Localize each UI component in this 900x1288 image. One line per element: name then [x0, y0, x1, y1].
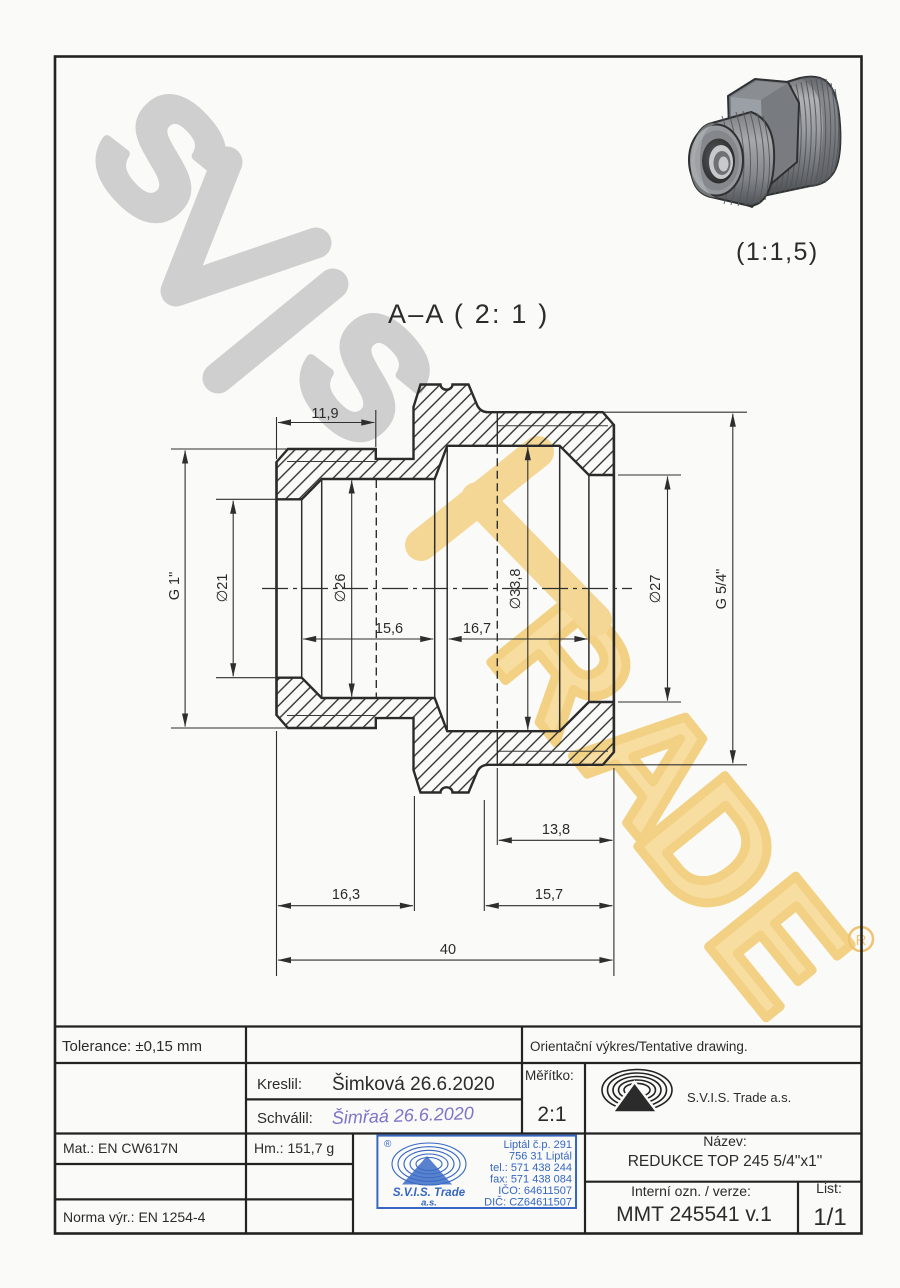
svg-text:Interní ozn. / verze:: Interní ozn. / verze: — [631, 1183, 751, 1199]
svg-text:IČO: 64611507: IČO: 64611507 — [498, 1184, 572, 1197]
svg-text:DIČ: CZ64611507: DIČ: CZ64611507 — [484, 1196, 572, 1209]
svg-text:15,7: 15,7 — [535, 887, 563, 903]
svg-text:A–A ( 2: 1 ): A–A ( 2: 1 ) — [388, 299, 549, 329]
svg-text:Měřítko:: Měřítko: — [525, 1068, 574, 1083]
svg-text:MMT 245541 v.1: MMT 245541 v.1 — [616, 1203, 772, 1226]
svg-text:Schválil:: Schválil: — [257, 1110, 313, 1127]
svg-text:∅26: ∅26 — [333, 574, 349, 603]
svg-text:16,7: 16,7 — [463, 621, 491, 637]
svg-text:(1:1,5): (1:1,5) — [736, 238, 819, 266]
svg-text:fax: 571 438 084: fax: 571 438 084 — [490, 1174, 572, 1186]
svg-text:G 5/4": G 5/4" — [714, 569, 730, 610]
svg-text:S.V.I.S. Trade a.s.: S.V.I.S. Trade a.s. — [687, 1090, 791, 1105]
svg-text:Liptál č.p. 291: Liptál č.p. 291 — [504, 1139, 573, 1151]
svg-text:Tolerance: ±0,15 mm: Tolerance: ±0,15 mm — [62, 1038, 202, 1055]
svg-text:List:: List: — [816, 1180, 842, 1196]
svg-text:®: ® — [384, 1139, 392, 1150]
svg-text:Norma výr.: EN 1254-4: Norma výr.: EN 1254-4 — [63, 1209, 206, 1225]
svg-text:15,6: 15,6 — [375, 621, 403, 637]
svg-text:G 1": G 1" — [167, 572, 183, 601]
svg-text:REDUKCE TOP 245 5/4"x1": REDUKCE TOP 245 5/4"x1" — [628, 1153, 823, 1170]
svg-text:∅27: ∅27 — [648, 575, 664, 604]
svg-text:Název:: Název: — [703, 1133, 747, 1149]
svg-text:11,9: 11,9 — [311, 406, 338, 422]
svg-text:40: 40 — [440, 942, 456, 958]
svg-text:Kreslil:: Kreslil: — [257, 1076, 302, 1093]
svg-text:Šimková 26.6.2020: Šimková 26.6.2020 — [332, 1073, 495, 1095]
svg-text:a.s.: a.s. — [421, 1198, 437, 1209]
svg-text:2:1: 2:1 — [537, 1103, 566, 1126]
svg-text:1/1: 1/1 — [813, 1204, 846, 1231]
svg-text:∅21: ∅21 — [215, 574, 231, 603]
svg-text:13,8: 13,8 — [542, 822, 570, 838]
svg-text:tel.: 571 438 244: tel.: 571 438 244 — [490, 1162, 572, 1174]
svg-text:Hm.: 151,7 g: Hm.: 151,7 g — [254, 1140, 334, 1156]
svg-text:Mat.: EN CW617N: Mat.: EN CW617N — [63, 1140, 178, 1156]
svg-text:16,3: 16,3 — [332, 887, 360, 903]
svg-text:756 31 Liptál: 756 31 Liptál — [509, 1151, 572, 1163]
svg-text:∅33,8: ∅33,8 — [508, 569, 524, 610]
svg-text:Orientační výkres/Tentative dr: Orientační výkres/Tentative drawing. — [530, 1039, 748, 1054]
